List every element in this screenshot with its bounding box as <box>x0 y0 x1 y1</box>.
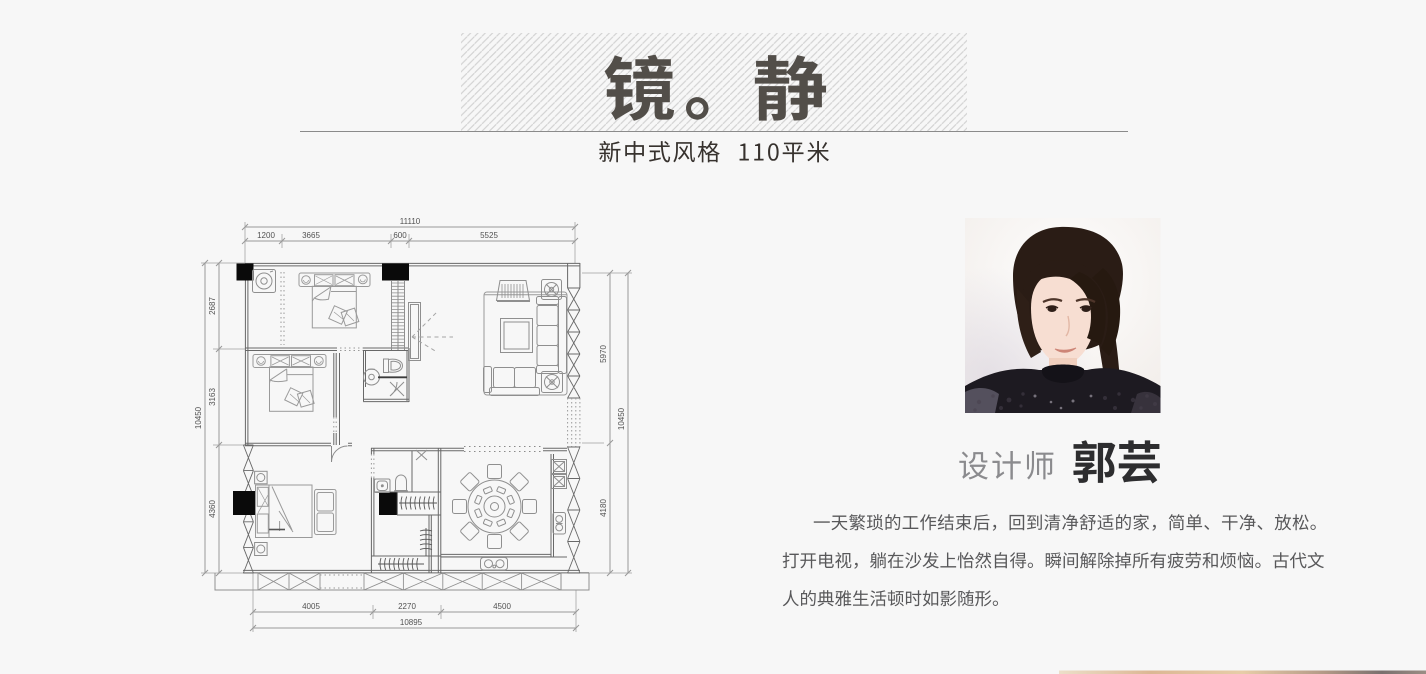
svg-text:10450: 10450 <box>194 406 203 429</box>
svg-text:4500: 4500 <box>493 602 511 611</box>
svg-text:2270: 2270 <box>398 602 416 611</box>
svg-text:3665: 3665 <box>302 231 320 240</box>
svg-text:1200: 1200 <box>257 231 275 240</box>
svg-text:4180: 4180 <box>599 499 608 517</box>
svg-text:3163: 3163 <box>208 388 217 406</box>
svg-text:11110: 11110 <box>400 217 421 226</box>
svg-text:5970: 5970 <box>599 345 608 363</box>
svg-text:4360: 4360 <box>208 500 217 518</box>
svg-text:10895: 10895 <box>400 618 423 627</box>
svg-text:4005: 4005 <box>302 602 320 611</box>
svg-text:2687: 2687 <box>208 297 217 315</box>
svg-text:5525: 5525 <box>480 231 498 240</box>
svg-text:10450: 10450 <box>617 407 626 430</box>
svg-text:600: 600 <box>393 231 407 240</box>
